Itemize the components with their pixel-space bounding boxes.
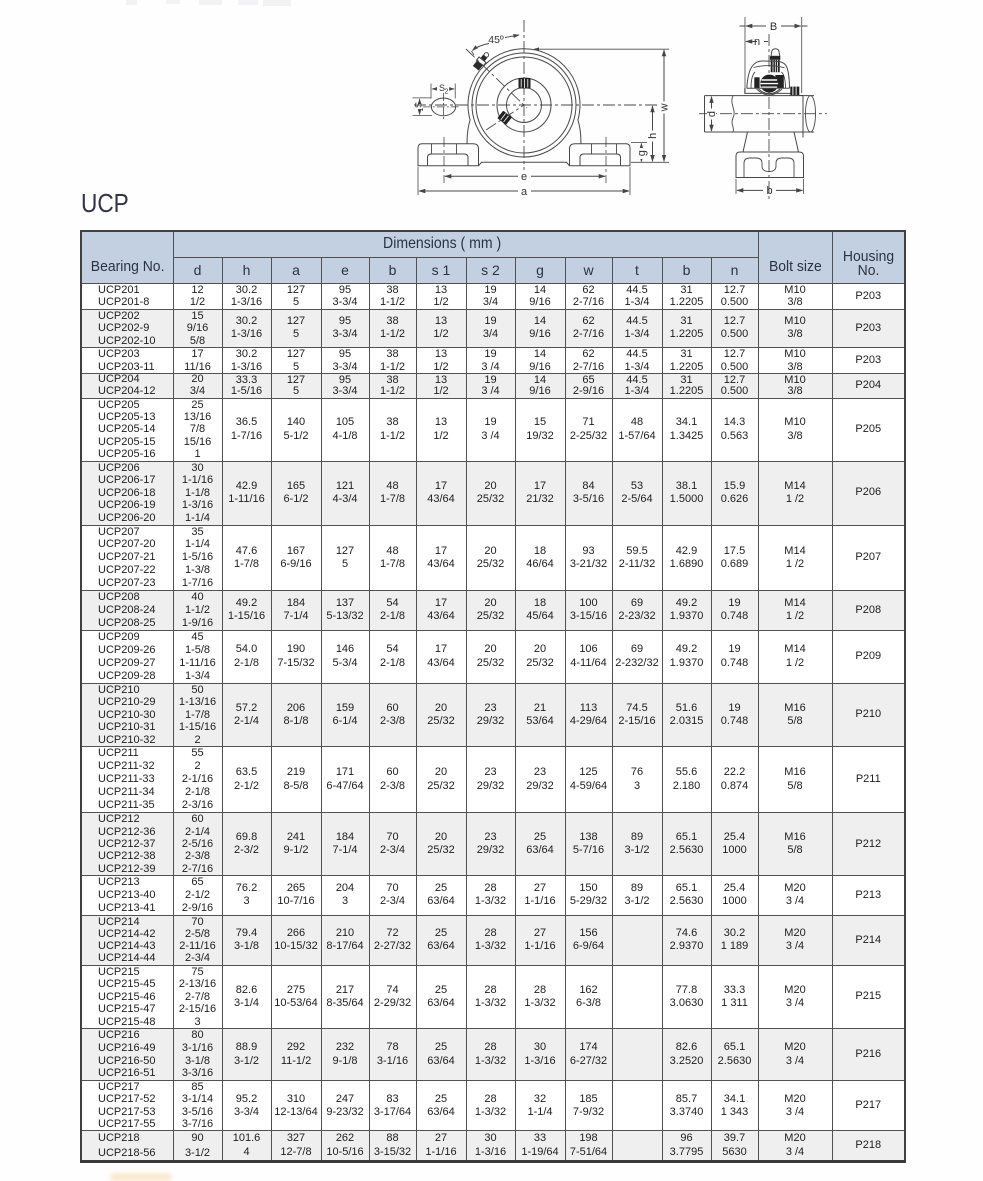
svg-text:e: e <box>521 171 527 183</box>
svg-text:w: w <box>659 103 671 112</box>
svg-text:a: a <box>521 186 528 198</box>
svg-text:n: n <box>754 36 760 48</box>
svg-text:d: d <box>706 111 718 117</box>
svg-text:B: B <box>770 21 777 33</box>
svg-text:b: b <box>766 185 772 197</box>
svg-text:45º: 45º <box>488 34 504 46</box>
svg-text:h: h <box>647 133 659 139</box>
svg-text:1: 1 <box>418 107 425 111</box>
svg-text:2: 2 <box>445 89 449 96</box>
svg-text:g: g <box>636 150 648 156</box>
svg-text:S: S <box>414 102 424 108</box>
